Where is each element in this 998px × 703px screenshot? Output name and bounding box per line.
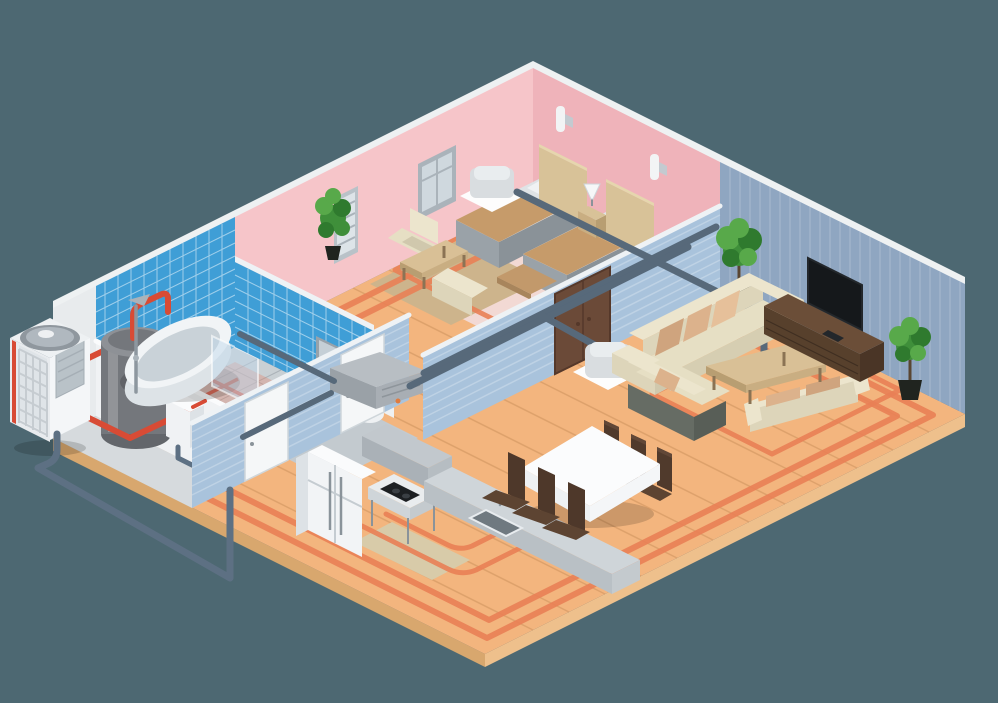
cassette-top [474,166,510,180]
right-plant-foliage [895,346,911,362]
corner-plant-foliage [739,248,757,266]
unit-shadow [14,440,86,456]
wall-sconce-2 [650,154,659,180]
corner-plant-foliage [722,249,740,267]
bedroom-plant-foliage [318,222,334,238]
shower-valve [133,355,139,361]
chair-back [508,452,525,502]
burner [402,494,410,499]
isometric-scene [0,0,998,703]
wall-sconce-1 [556,106,565,132]
brown-door-handle [587,317,591,321]
tank-highlight [108,344,118,432]
vent-unit-indicator [396,399,401,404]
bedroom-plant-foliage [325,188,341,204]
right-plant-foliage [910,345,926,361]
house-illustration [0,0,998,703]
unit-red-stripe [12,340,16,424]
burner [392,489,400,494]
brown-door-handle [576,322,580,326]
chair-back [568,482,585,532]
right-plant-pot [898,380,922,400]
fridge-side [296,452,308,536]
chair-back [538,467,555,517]
corner-plant-foliage [729,218,749,238]
fan-hub [38,330,54,338]
right-plant-foliage [901,317,919,335]
entrance-door-handle [250,442,254,446]
bedroom-plant-foliage [334,220,350,236]
